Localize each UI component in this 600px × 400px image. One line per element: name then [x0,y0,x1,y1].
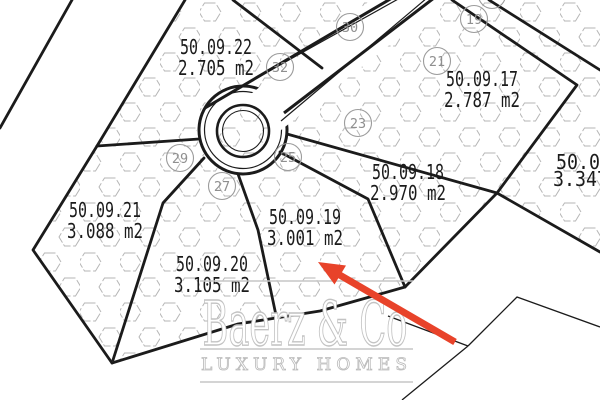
lot-marker-number-32: 32 [272,60,288,76]
plot-area-50.09.21: 3.088 m2 [67,219,143,243]
lot-marker-number-17: 17 [484,0,500,4]
cadastral-plot-map: 303217192123252729 50.09.222.705 m250.09… [0,0,600,400]
lot-marker-number-19: 19 [466,12,482,28]
thin-line-ne [468,297,600,346]
lot-marker-number-23: 23 [350,116,366,132]
plot-map-canvas: 303217192123252729 50.09.222.705 m250.09… [0,0,600,400]
lot-marker-number-30: 30 [342,20,358,36]
thin-line-sw [402,346,468,400]
plot-area-50.09.22: 2.705 m2 [178,56,254,80]
boundary-far-left [0,0,72,128]
road-island [217,105,269,157]
plot-area-50.09.19: 3.001 m2 [267,226,343,250]
plot-area-50.09.18: 2.970 m2 [370,181,446,205]
lot-marker-number-27: 27 [214,179,230,195]
lot-marker-number-25: 25 [280,150,296,166]
adjacent-parcel-lines [388,297,600,400]
plot-area-50.09.17: 2.787 m2 [444,88,520,112]
lot-marker-number-29: 29 [172,151,188,167]
plot-area-50.09: 3.347 [553,167,600,191]
lot-marker-number-21: 21 [429,54,445,70]
